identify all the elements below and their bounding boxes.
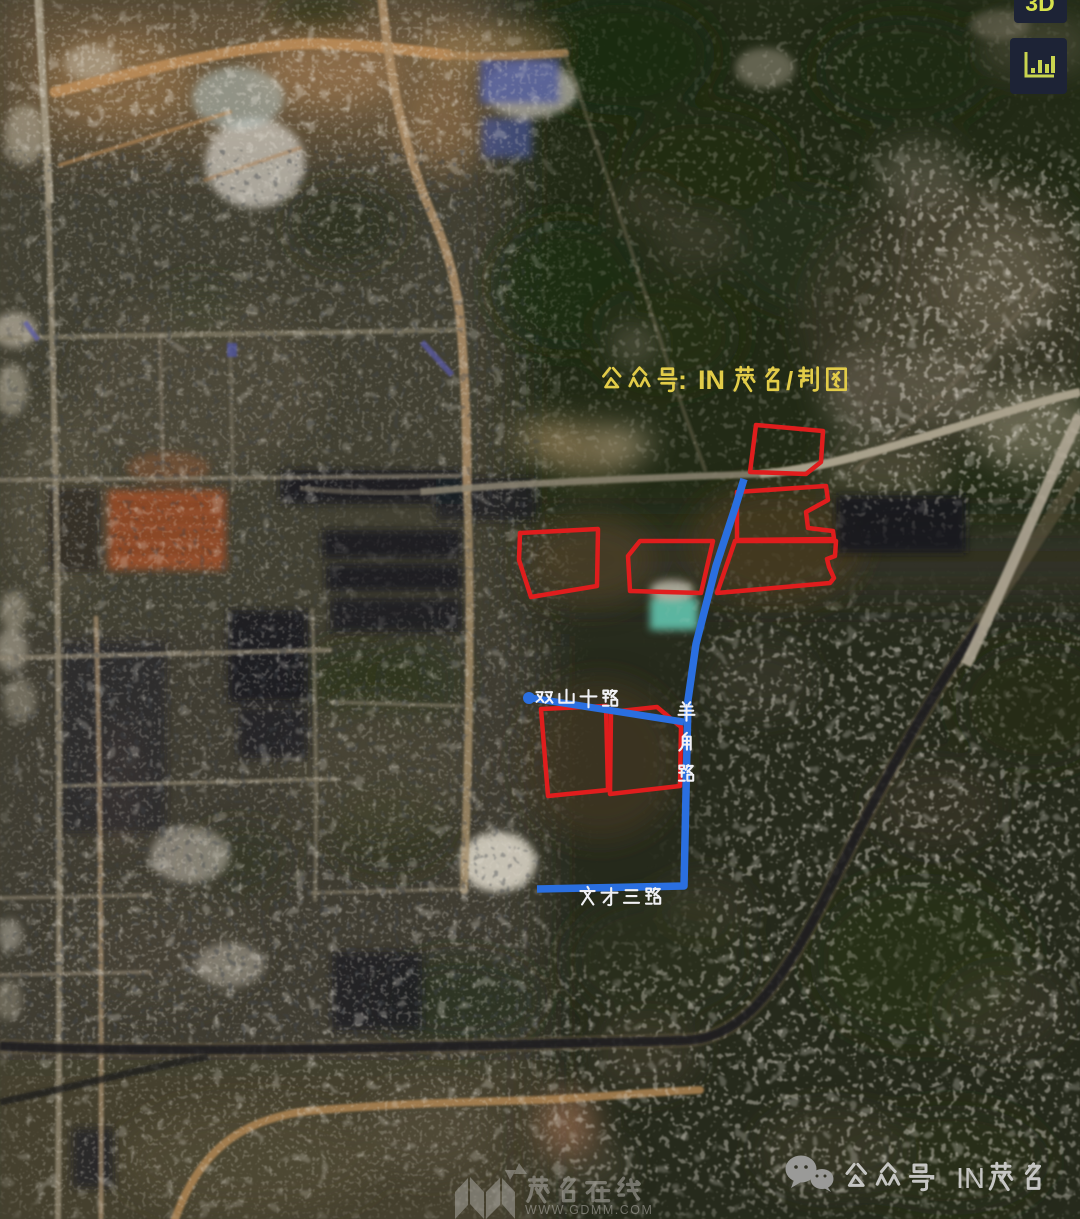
svg-text::: : [678,365,687,395]
svg-text:3D: 3D [1025,0,1054,16]
svg-text:IN: IN [956,1163,985,1195]
svg-text:·: · [928,1161,938,1194]
svg-text:WWW.GDMM.COM: WWW.GDMM.COM [525,1203,653,1217]
svg-text:IN: IN [698,365,725,395]
svg-text:/: / [786,366,793,396]
